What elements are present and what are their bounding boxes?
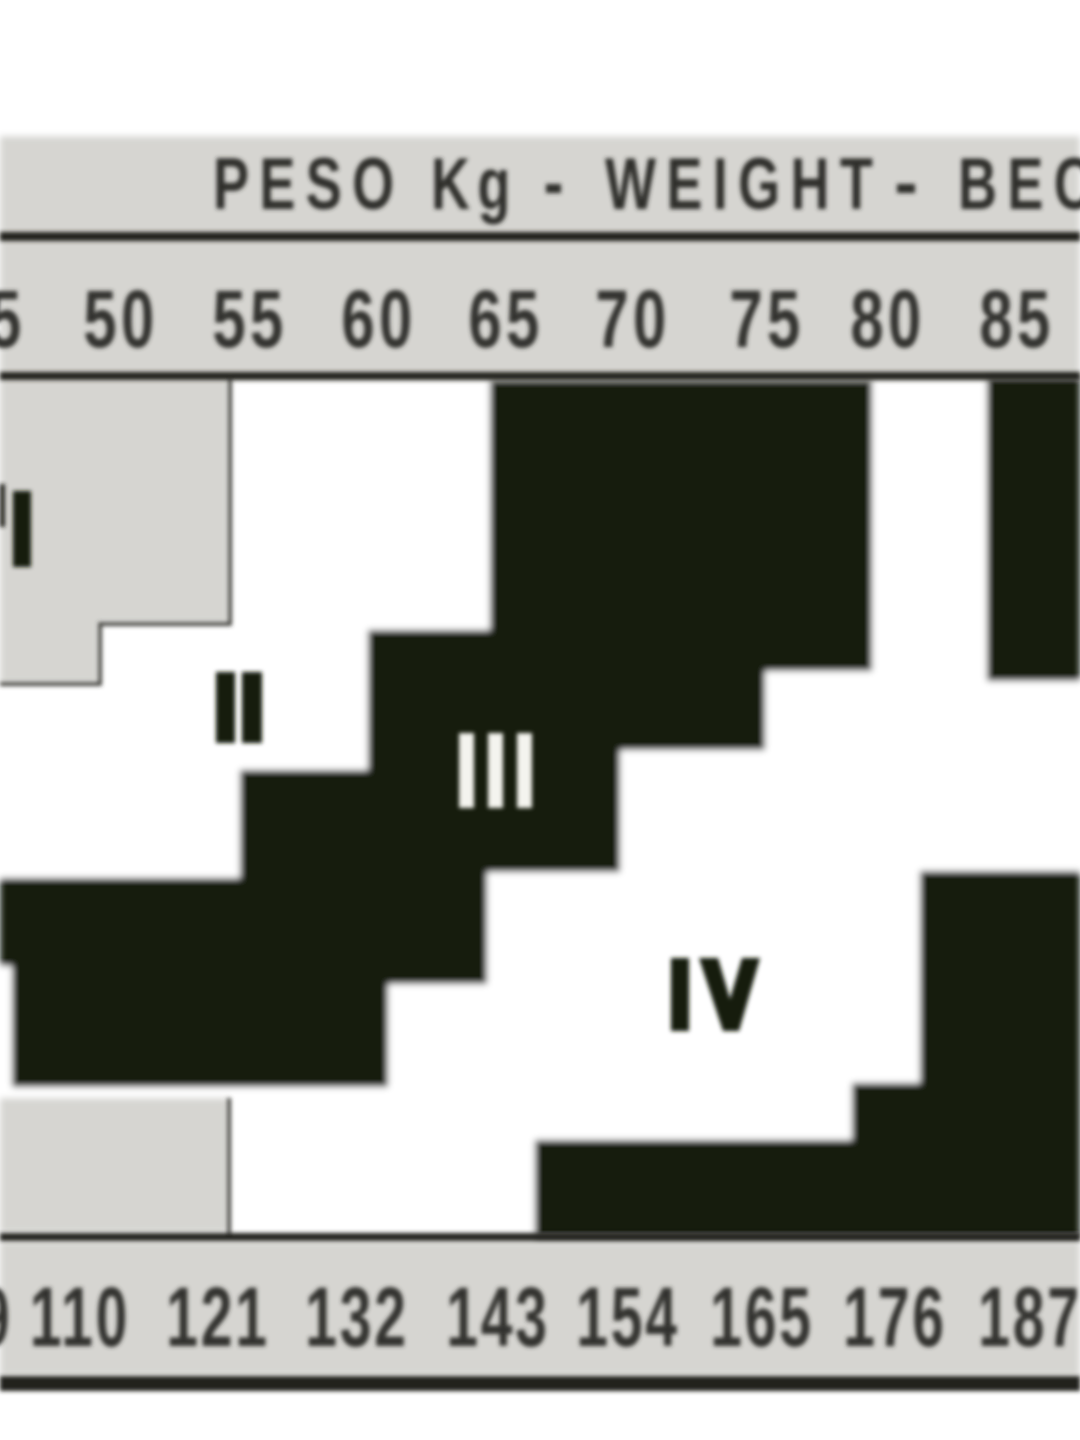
svg-text:WEIGHT: WEIGHT [605, 143, 883, 225]
svg-text:75: 75 [729, 274, 804, 365]
svg-text:45: 45 [0, 274, 26, 365]
svg-text:176: 176 [843, 1271, 946, 1365]
svg-text:PESO: PESO [213, 143, 405, 225]
svg-text:ВЕС: ВЕС [958, 143, 1080, 225]
svg-text:99: 99 [0, 1271, 12, 1365]
svg-text:85: 85 [979, 274, 1054, 365]
svg-text:80: 80 [850, 274, 925, 365]
svg-text:121: 121 [166, 1271, 269, 1365]
svg-text:187: 187 [978, 1271, 1080, 1365]
svg-text:165: 165 [710, 1271, 813, 1365]
svg-text:143: 143 [446, 1271, 549, 1365]
svg-text:55: 55 [212, 274, 287, 365]
svg-text:110: 110 [30, 1271, 130, 1365]
svg-text:50: 50 [83, 274, 158, 365]
svg-text:60: 60 [341, 274, 416, 365]
svg-text:132: 132 [305, 1271, 408, 1365]
svg-text:65: 65 [468, 274, 543, 365]
svg-text:154: 154 [576, 1271, 679, 1365]
svg-text:70: 70 [595, 274, 670, 365]
svg-text:Kg: Kg [431, 143, 518, 225]
